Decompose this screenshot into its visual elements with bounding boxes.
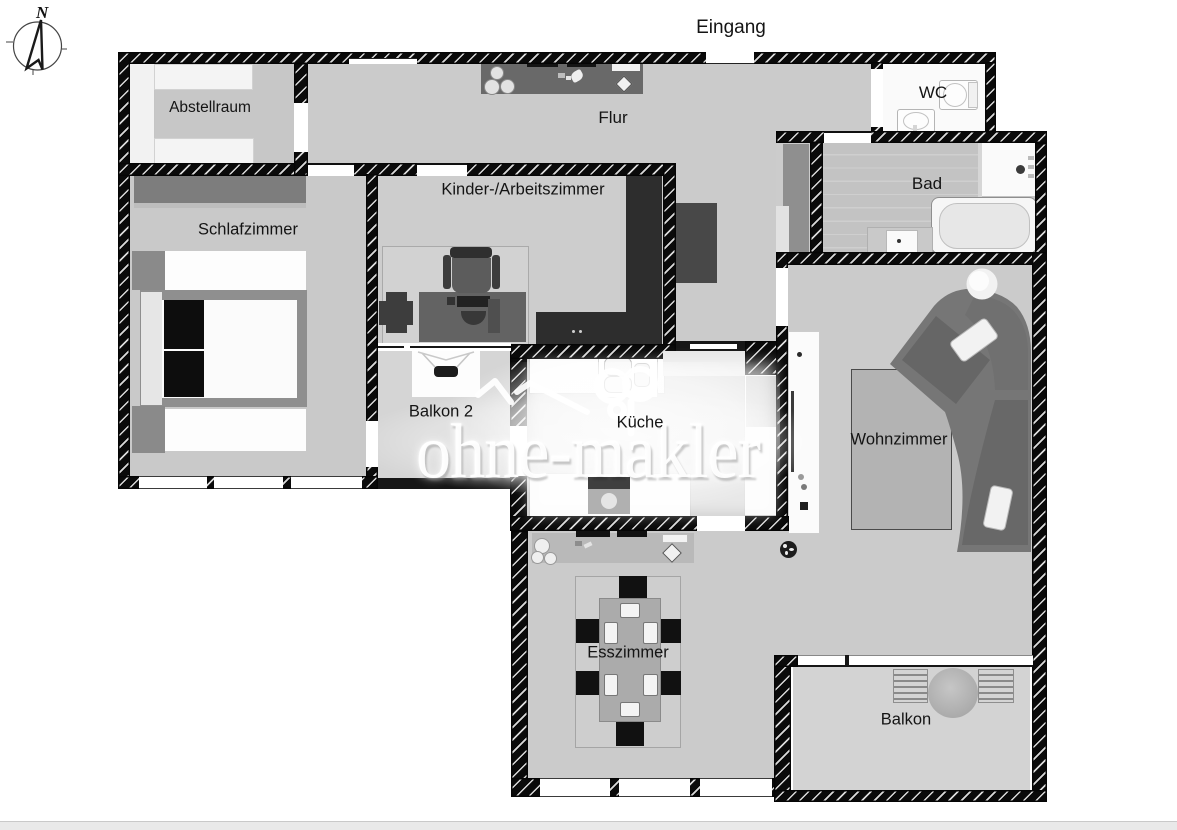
svg-text:N: N bbox=[35, 3, 49, 22]
